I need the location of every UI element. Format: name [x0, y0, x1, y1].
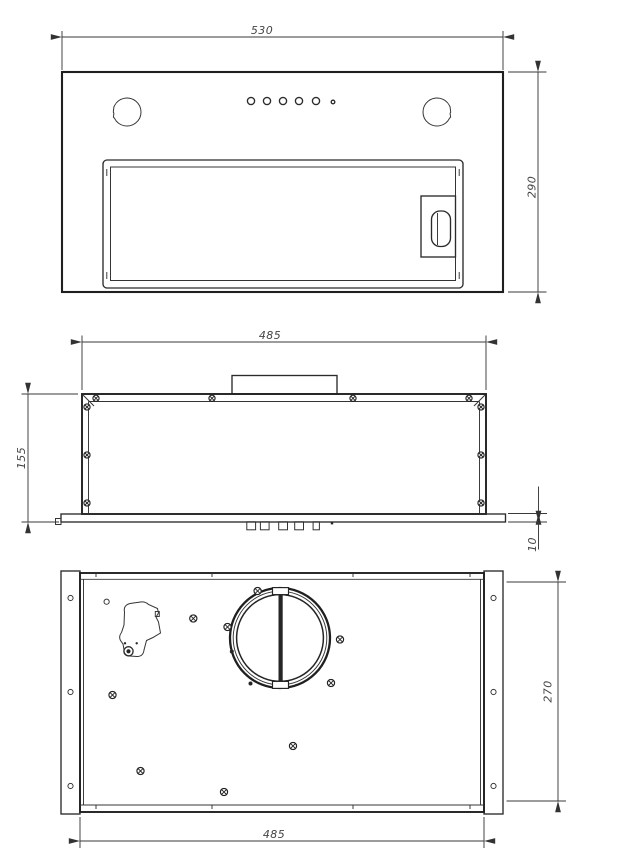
- mounting-hole: [68, 689, 73, 694]
- screw-head: [109, 691, 116, 698]
- air-outlet: [230, 588, 330, 689]
- side-body: [82, 394, 486, 514]
- side-view: 485 155 10: [15, 329, 547, 552]
- dimension-label: 485: [263, 828, 285, 841]
- cable-bracket: [104, 599, 161, 656]
- mounting-hole: [68, 595, 73, 600]
- dimension-label: 485: [259, 329, 281, 342]
- push-buttons-profile: [247, 522, 333, 530]
- screw-head: [84, 452, 90, 458]
- damper-pivot-bottom: [273, 681, 289, 688]
- dimension-label: 155: [15, 447, 28, 469]
- lamp-cutout-right: [423, 98, 451, 126]
- corner-screws: [84, 395, 484, 506]
- flange-end-lip: [56, 519, 62, 525]
- screw-head: [289, 742, 296, 749]
- damper-pivot-top: [273, 588, 289, 595]
- front-view: 530 290: [62, 24, 547, 292]
- button-5: [312, 97, 319, 104]
- filter-panel: [103, 160, 463, 288]
- dim-front-height: 290: [508, 72, 547, 292]
- button-3: [279, 97, 286, 104]
- duct-connector: [232, 376, 337, 395]
- screw-head: [466, 395, 472, 401]
- mounting-hole: [491, 595, 496, 600]
- dim-flange-thickness: 10: [508, 487, 547, 552]
- ring-clip: [230, 650, 234, 654]
- dim-bottom-width: 485: [80, 817, 484, 848]
- control-buttons: [247, 97, 334, 104]
- push-button-tick: [331, 522, 333, 525]
- mounting-hole: [491, 783, 496, 788]
- ring-clip: [249, 682, 253, 686]
- dimension-label: 290: [526, 176, 539, 198]
- screw-head: [224, 623, 231, 630]
- push-button: [247, 522, 256, 530]
- technical-drawing-canvas: 530 290: [0, 0, 626, 856]
- screw-head: [478, 404, 484, 410]
- push-button: [279, 522, 288, 530]
- screw-head: [93, 395, 99, 401]
- mounting-hole: [491, 689, 496, 694]
- screw-head: [84, 404, 90, 410]
- screw-head: [336, 636, 343, 643]
- mounting-strip-left: [61, 571, 80, 814]
- push-button: [295, 522, 304, 530]
- cable-clamp-screw-center: [126, 649, 130, 653]
- dim-front-width: 530: [62, 24, 503, 70]
- screw-head: [220, 788, 227, 795]
- push-button: [313, 522, 319, 530]
- button-2: [263, 97, 270, 104]
- damper-blade: [279, 595, 283, 682]
- dim-body-height: 155: [15, 394, 78, 522]
- dimension-label: 530: [251, 24, 273, 37]
- bottom-view: 270 485: [61, 571, 566, 848]
- filter-inner-panel: [111, 167, 456, 281]
- dim-body-depth: 270: [507, 582, 567, 801]
- bracket-rivet: [136, 642, 138, 644]
- screw-head: [350, 395, 356, 401]
- screw-head: [137, 767, 144, 774]
- bracket-rivet: [124, 642, 126, 644]
- mounting-hole: [68, 783, 73, 788]
- indicator-light: [331, 100, 335, 104]
- screw-head: [478, 500, 484, 506]
- mounting-flange: [61, 514, 506, 522]
- filter-outer-frame: [103, 160, 463, 288]
- bracket-hole: [104, 599, 109, 604]
- mounting-strip-right: [484, 571, 503, 814]
- dimension-label: 270: [542, 680, 555, 702]
- latch-handle: [432, 211, 451, 247]
- screw-head: [478, 452, 484, 458]
- screw-head: [209, 395, 215, 401]
- screw-head: [254, 587, 261, 594]
- dim-body-width: 485: [82, 329, 486, 390]
- screw-head: [84, 500, 90, 506]
- screw-head: [327, 679, 334, 686]
- lamp-cutout-left: [113, 98, 141, 126]
- screw-head: [190, 615, 197, 622]
- dimension-label: 10: [526, 537, 539, 552]
- button-4: [295, 97, 302, 104]
- push-button: [260, 522, 269, 530]
- button-1: [247, 97, 254, 104]
- drawing-page: 530 290: [0, 0, 626, 856]
